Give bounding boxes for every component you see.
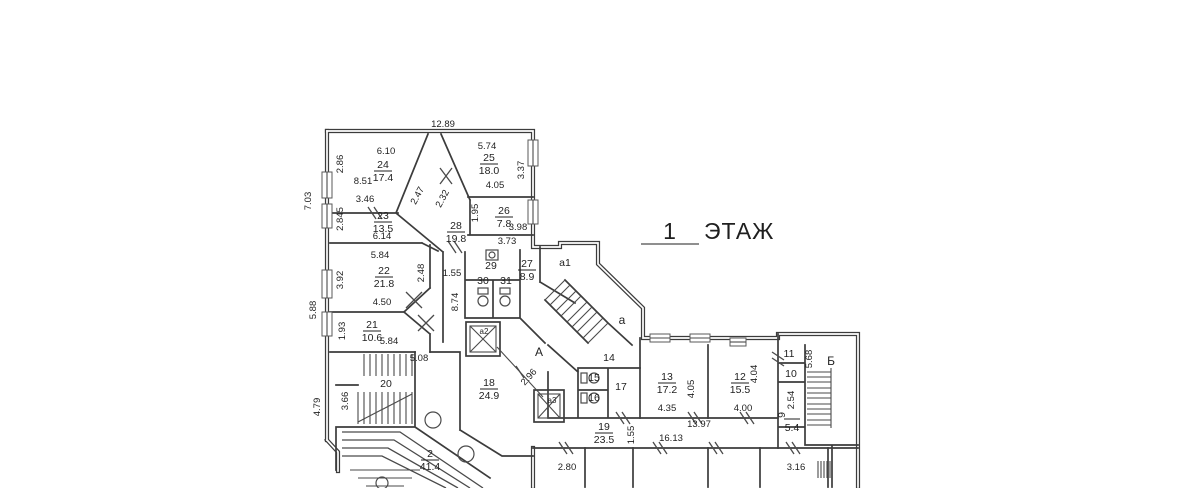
svg-text:8.51: 8.51 xyxy=(354,176,373,187)
toilet-room31 xyxy=(500,288,510,306)
room-label-22: 2221.8 xyxy=(374,265,395,290)
svg-text:24.9: 24.9 xyxy=(479,390,500,402)
room-number-30: 30 xyxy=(477,275,489,287)
svg-text:5.4: 5.4 xyxy=(785,422,800,434)
letter-A: А xyxy=(535,345,543,359)
room-number-10: 10 xyxy=(785,368,797,380)
svg-text:3.73: 3.73 xyxy=(498,236,517,247)
room-number-11: 11 xyxy=(784,348,795,360)
letter-a2: а2 xyxy=(480,327,489,336)
room-label-12: 1215.5 xyxy=(730,371,751,396)
svg-text:5.74: 5.74 xyxy=(478,141,497,152)
svg-text:23: 23 xyxy=(377,210,389,222)
room-number-20: 20 xyxy=(380,378,392,390)
svg-text:2.47: 2.47 xyxy=(409,185,427,206)
svg-text:4.05: 4.05 xyxy=(686,380,697,399)
svg-text:13: 13 xyxy=(661,371,673,383)
svg-text:19: 19 xyxy=(598,421,610,433)
letter-a3: а3 xyxy=(548,396,557,405)
svg-text:3.46: 3.46 xyxy=(356,194,375,205)
title-word: ЭТАЖ xyxy=(704,218,774,244)
room-label-27: 278.9 xyxy=(518,258,536,283)
svg-text:2.96: 2.96 xyxy=(519,367,540,388)
room-label-18: 1824.9 xyxy=(479,377,500,402)
sink-room29 xyxy=(486,250,498,260)
svg-text:25: 25 xyxy=(483,152,495,164)
svg-text:4.35: 4.35 xyxy=(658,403,677,414)
svg-text:1.93: 1.93 xyxy=(337,322,348,341)
room-label-19: 1923.5 xyxy=(594,421,615,446)
svg-text:23.5: 23.5 xyxy=(594,434,615,446)
svg-text:19.8: 19.8 xyxy=(446,233,467,245)
svg-text:41.4: 41.4 xyxy=(420,461,441,473)
svg-text:9: 9 xyxy=(776,412,788,418)
svg-text:4.50: 4.50 xyxy=(373,297,392,308)
letter-a1: а1 xyxy=(559,257,571,269)
svg-text:26: 26 xyxy=(498,205,510,217)
room-number-16: 16 xyxy=(588,392,600,404)
svg-text:6.14: 6.14 xyxy=(373,231,392,242)
svg-text:3.37: 3.37 xyxy=(516,161,527,180)
floor-plan-svg: 1 ЭТАЖ 2417.4 2518.0 2313.5 267.8 2819.8… xyxy=(0,0,1200,488)
room-number-17: 17 xyxy=(615,381,627,393)
room-label-25: 2518.0 xyxy=(479,152,500,177)
toilet-room30 xyxy=(478,288,488,306)
title-number: 1 xyxy=(663,218,677,244)
svg-text:1.95: 1.95 xyxy=(470,204,481,223)
room-number-15: 15 xyxy=(588,372,600,384)
svg-text:24: 24 xyxy=(377,159,389,171)
svg-text:13.97: 13.97 xyxy=(687,419,711,430)
svg-text:2.48: 2.48 xyxy=(416,264,427,283)
svg-text:2.54: 2.54 xyxy=(786,391,797,410)
svg-text:12: 12 xyxy=(734,371,746,383)
svg-text:2.845: 2.845 xyxy=(335,207,346,231)
svg-text:18.0: 18.0 xyxy=(479,165,500,177)
room-label-2: 241.4 xyxy=(420,448,441,473)
room-number-14: 14 xyxy=(603,352,615,364)
room-number-31: 31 xyxy=(500,275,512,287)
svg-text:2: 2 xyxy=(427,448,433,460)
floor-plan-canvas: 1 ЭТАЖ 2417.4 2518.0 2313.5 267.8 2819.8… xyxy=(0,0,1200,488)
svg-text:22: 22 xyxy=(378,265,390,277)
stairs-hall-flight xyxy=(545,280,608,343)
letter-a: а xyxy=(619,313,626,327)
svg-text:21.8: 21.8 xyxy=(374,278,395,290)
svg-text:16.13: 16.13 xyxy=(659,433,683,444)
svg-text:8.74: 8.74 xyxy=(450,293,461,312)
svg-text:28: 28 xyxy=(450,220,462,232)
svg-text:3.66: 3.66 xyxy=(340,392,351,411)
svg-text:17.4: 17.4 xyxy=(373,172,394,184)
svg-text:7.03: 7.03 xyxy=(303,192,314,211)
svg-text:1.55: 1.55 xyxy=(443,268,462,279)
svg-text:6.10: 6.10 xyxy=(377,146,396,157)
room-number-29: 29 xyxy=(485,260,497,272)
svg-text:5.84: 5.84 xyxy=(371,250,390,261)
svg-text:18: 18 xyxy=(483,377,495,389)
svg-text:3.16: 3.16 xyxy=(787,462,806,473)
svg-text:27: 27 xyxy=(521,258,533,270)
svg-text:5.08: 5.08 xyxy=(410,353,429,364)
svg-text:4.05: 4.05 xyxy=(486,180,505,191)
svg-text:2.80: 2.80 xyxy=(558,462,577,473)
room-label-13: 1317.2 xyxy=(657,371,678,396)
svg-text:1.55: 1.55 xyxy=(626,426,637,445)
svg-text:4.04: 4.04 xyxy=(749,365,760,384)
svg-text:4.00: 4.00 xyxy=(734,403,753,414)
svg-text:8.9: 8.9 xyxy=(520,271,535,283)
room-label-28: 2819.8 xyxy=(446,220,467,245)
svg-text:2.86: 2.86 xyxy=(335,155,346,174)
plan-title: 1 ЭТАЖ xyxy=(641,218,774,244)
svg-text:5.88: 5.88 xyxy=(308,301,319,320)
svg-text:5.84: 5.84 xyxy=(380,336,399,347)
letter-B: Б xyxy=(827,354,835,368)
stairs-B-stairwell xyxy=(807,368,831,478)
svg-text:3.92: 3.92 xyxy=(335,271,346,290)
room-label-9: 95.4 xyxy=(776,412,800,434)
svg-text:4.79: 4.79 xyxy=(312,398,323,417)
dim-overall-top: 12.89 xyxy=(431,119,455,130)
svg-text:17.2: 17.2 xyxy=(657,384,678,396)
svg-text:5.68: 5.68 xyxy=(804,350,815,369)
svg-text:21: 21 xyxy=(366,319,378,331)
svg-text:2.32: 2.32 xyxy=(434,188,452,209)
svg-text:15.5: 15.5 xyxy=(730,384,751,396)
room-labels: 2417.4 2518.0 2313.5 267.8 2819.8 2221.8… xyxy=(362,152,800,473)
svg-text:3.98: 3.98 xyxy=(509,222,528,233)
room-label-24: 2417.4 xyxy=(373,159,394,184)
